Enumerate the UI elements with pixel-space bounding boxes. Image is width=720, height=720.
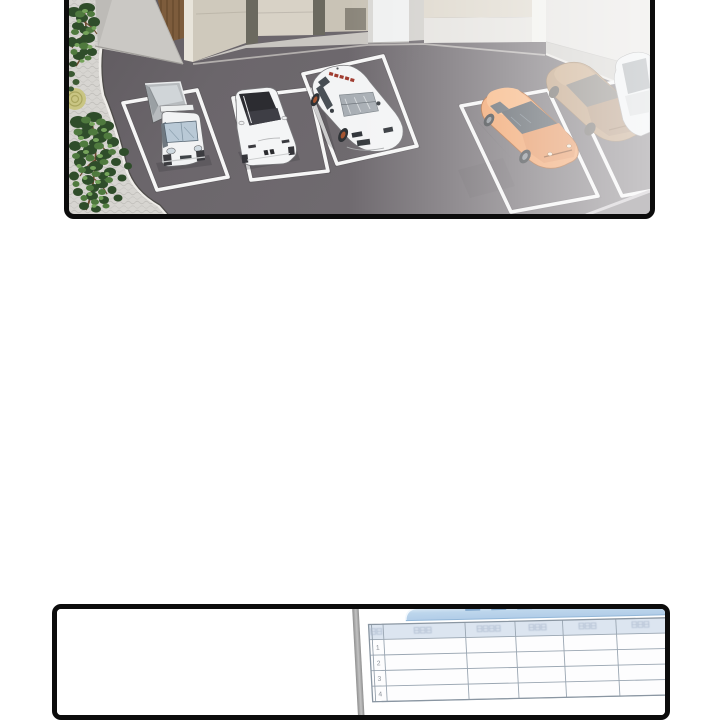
- svg-text:4: 4: [378, 691, 382, 698]
- svg-text:2: 2: [377, 660, 381, 667]
- svg-text:3: 3: [377, 676, 381, 683]
- svg-text:1: 1: [376, 645, 380, 652]
